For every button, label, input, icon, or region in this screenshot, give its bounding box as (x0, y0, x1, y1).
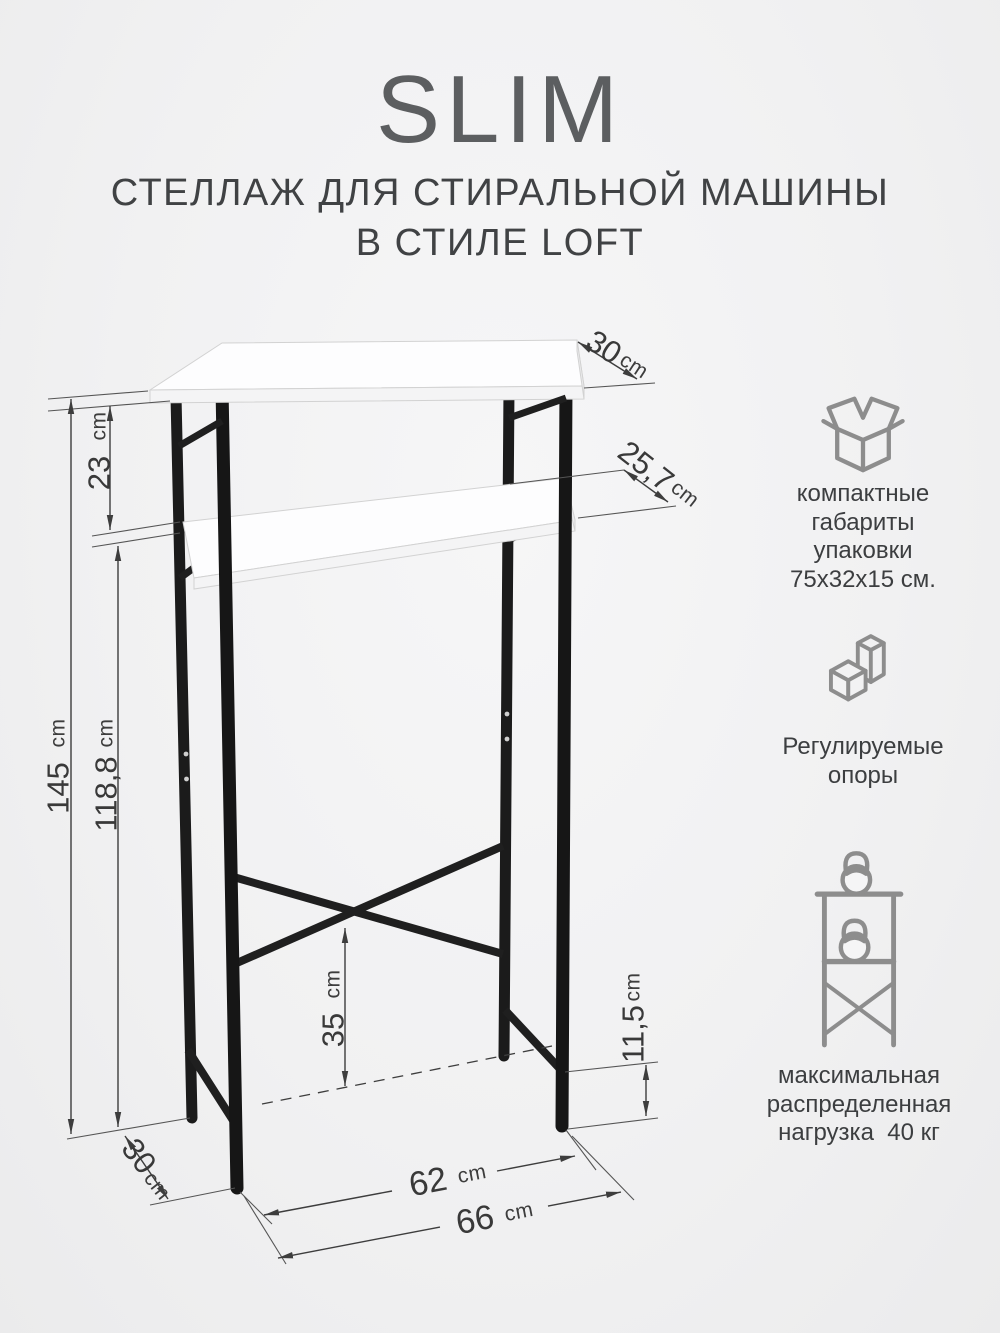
dim-line-62-right (497, 1156, 575, 1171)
dim-145-value: 145 (41, 762, 76, 814)
dim-23-value: 23 (82, 456, 117, 490)
dim-1188-unit: cm (95, 719, 118, 748)
product-subtitle-line2: В СТИЛЕ LOFT (0, 222, 1000, 265)
dim-30-top-unit: cm (616, 348, 653, 383)
dim-35-value: 35 (316, 1013, 351, 1047)
dim-115-unit: cm (622, 973, 645, 1002)
adjustable-feet-icon (824, 624, 902, 715)
feature-packaging: компактные габариты упаковки 75х32х15 см… (757, 394, 969, 594)
product-subtitle-line1: СТЕЛЛАЖ ДЛЯ СТИРАЛЬНОЙ МАШИНЫ (0, 172, 1000, 215)
product-title: SLIM (0, 62, 1000, 158)
dim-66-value: 66 (453, 1198, 497, 1243)
feature-packaging-line4: 75х32х15 см. (757, 566, 969, 595)
feature-packaging-line1: компактные (757, 480, 969, 509)
dim-35-unit: cm (322, 970, 345, 999)
product-infographic: SLIM СТЕЛЛАЖ ДЛЯ СТИРАЛЬНОЙ МАШИНЫ В СТИ… (0, 0, 1000, 1333)
dim-62-unit: cm (456, 1160, 489, 1188)
dim-62-value: 62 (406, 1160, 450, 1204)
dim-23-unit: cm (88, 412, 111, 441)
package-box-icon (820, 394, 906, 474)
dim-66-unit: cm (503, 1198, 536, 1226)
dim-115-value: 11,5 (616, 1005, 651, 1063)
feature-load-line2: распределенная (753, 1091, 965, 1120)
feature-load-line1: максимальная (753, 1062, 965, 1091)
feature-load-line3: нагрузка 40 кг (753, 1119, 965, 1148)
max-load-icon (810, 848, 908, 1052)
dim-145-unit: cm (47, 719, 70, 748)
rack-cross-brace (230, 846, 503, 966)
feature-packaging-line2: габариты (757, 509, 969, 538)
dim-line-66-right (548, 1192, 621, 1206)
dim-1188-value: 118,8 (89, 756, 124, 831)
second-shelf-board (183, 478, 575, 589)
dimension-labels: 30 cm 23 cm 25,7 cm 145 cm 118,8 cm 35 c… (41, 323, 704, 1242)
dim-line-66-left (278, 1227, 440, 1258)
top-board (150, 340, 584, 403)
dimension-graphics (48, 342, 676, 1264)
header: SLIM СТЕЛЛАЖ ДЛЯ СТИРАЛЬНОЙ МАШИНЫ В СТИ… (0, 62, 1000, 265)
feature-feet-line1: Регулируемые (757, 733, 969, 762)
dim-line-62-left (264, 1191, 392, 1215)
floor-dashed-line (262, 1046, 552, 1104)
feature-max-load: максимальная распределенная нагрузка 40 … (753, 848, 965, 1148)
feature-feet-line2: опоры (757, 762, 969, 791)
feature-packaging-line3: упаковки (757, 537, 969, 566)
feature-adjustable-feet: Регулируемые опоры (757, 624, 969, 790)
